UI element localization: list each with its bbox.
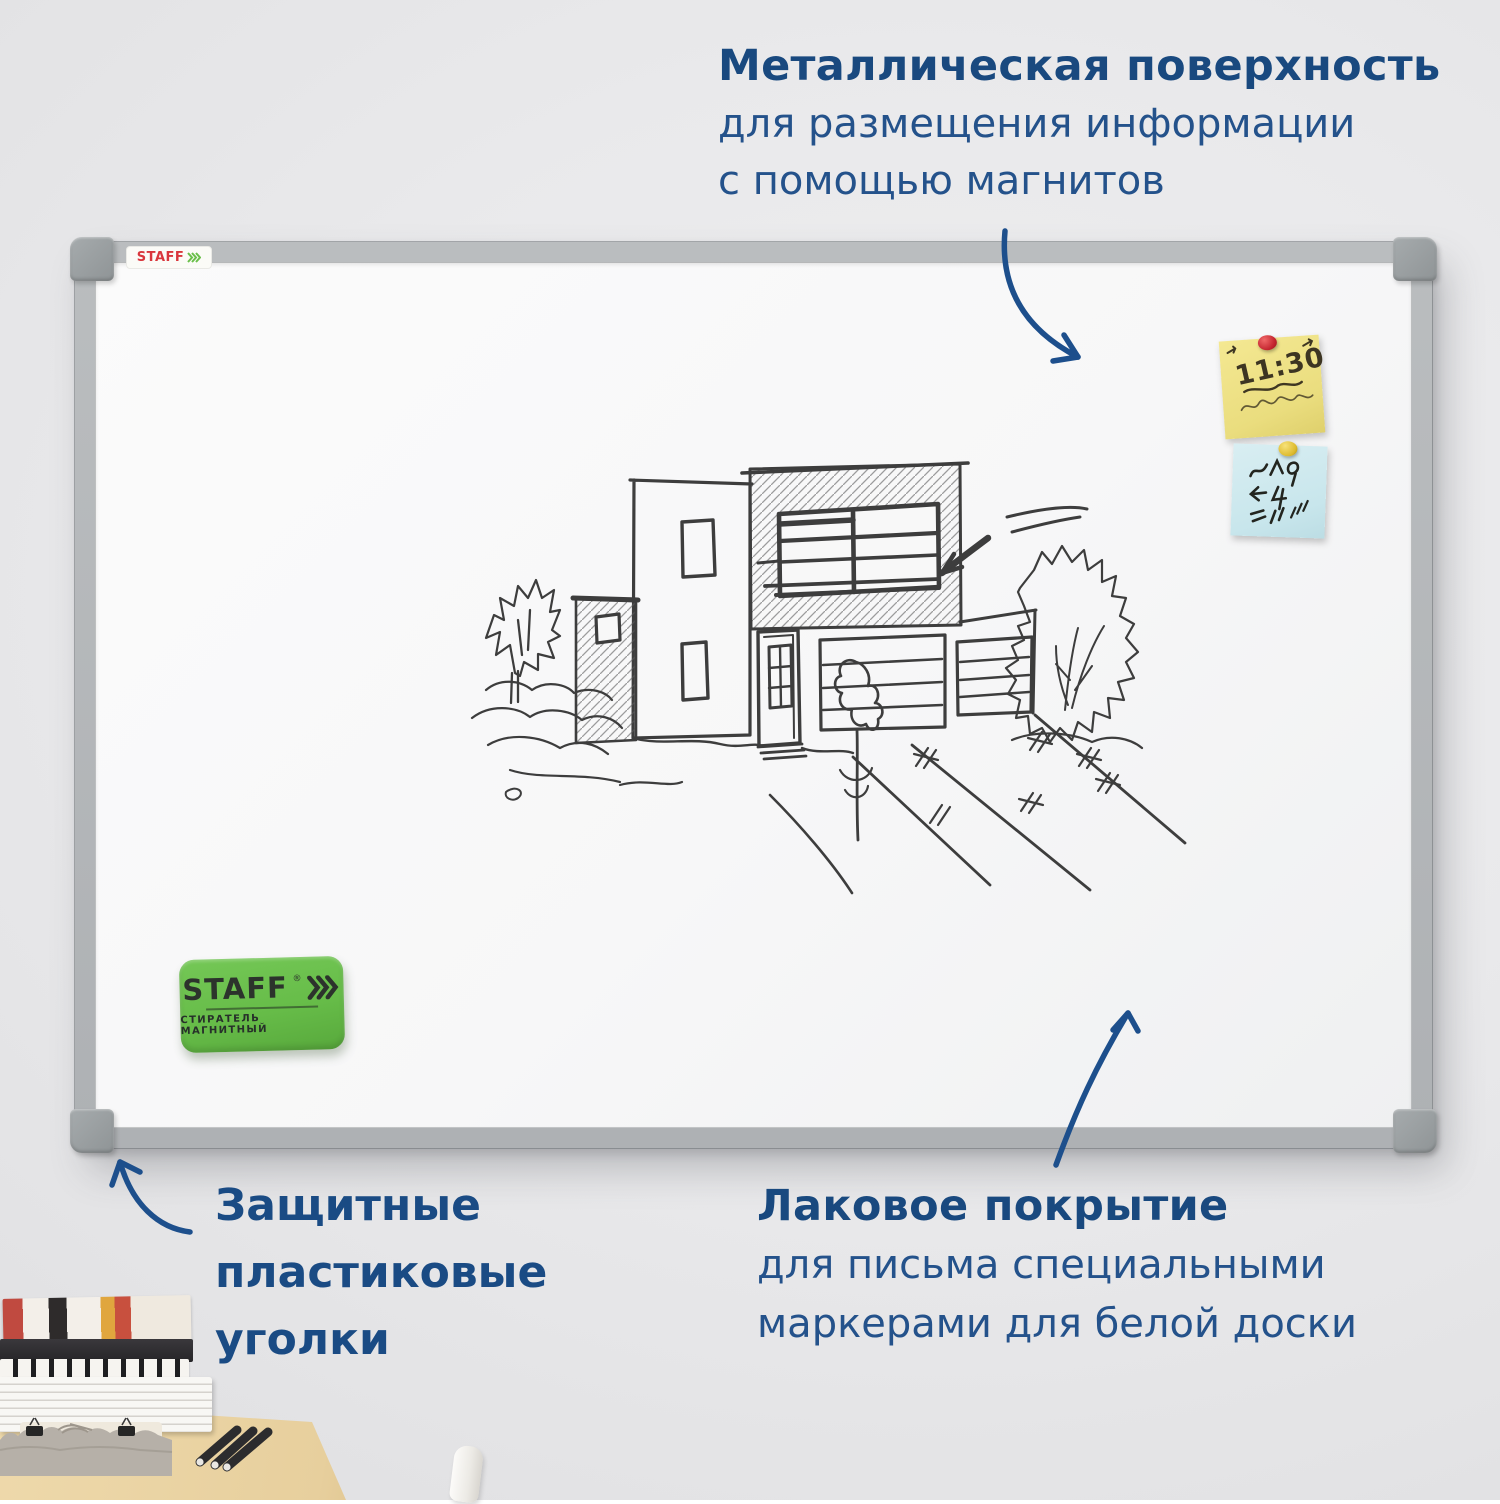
eraser-label-text: СТИРАТЕЛЬ МАГНИТНЫЙ [180, 1011, 345, 1037]
callout-magnetic-surface: Металлическая поверхность для размещения… [718, 36, 1440, 210]
staff-frame-sticker-label: STAFF [137, 250, 185, 265]
magnetic-eraser: STAFF ® СТИРАТЕЛЬ МАГНИТНЫЙ [179, 956, 345, 1053]
binder-clip [26, 1426, 43, 1436]
callout-lacquer-coating: Лаковое покрытие для письма специальными… [757, 1176, 1357, 1354]
corner-cap-bottom-right [1393, 1109, 1437, 1153]
binder-clip [118, 1426, 135, 1436]
whiteboard: STAFF 11:30 [75, 242, 1432, 1148]
callout-magnetic-title: Металлическая поверхность [718, 36, 1440, 96]
staff-chevrons-icon [187, 252, 201, 263]
house-sketch [420, 440, 1370, 910]
book-red-white [3, 1295, 192, 1345]
eraser-divider [206, 1006, 318, 1011]
callout-lacquer-title: Лаковое покрытие [757, 1176, 1357, 1236]
pencil-tray [0, 1427, 172, 1476]
eraser-chevrons-icon [306, 975, 341, 1000]
corner-cap-top-right [1393, 237, 1437, 281]
sticky-note-blue [1230, 443, 1327, 538]
desk-accessories [0, 1410, 330, 1500]
callout-corners-line3: уголки [215, 1306, 547, 1373]
eraser-brand-row: STAFF ® [182, 972, 341, 1005]
callout-corners-line2: пластиковые [215, 1239, 547, 1306]
callout-lacquer-line1: для письма специальными [757, 1236, 1357, 1295]
sticky-note-yellow: 11:30 [1219, 335, 1326, 440]
callout-lacquer-line2: маркерами для белой доски [757, 1295, 1357, 1354]
staff-frame-sticker: STAFF [126, 246, 212, 269]
note-scribbles [1230, 443, 1327, 538]
callout-corners-line1: Защитные [215, 1172, 547, 1239]
arrow-corners [120, 1162, 190, 1232]
paper-roll [449, 1444, 485, 1503]
scene: STAFF 11:30 [0, 0, 1500, 1500]
callout-magnetic-line2: с помощью магнитов [718, 153, 1440, 210]
eraser-registered-mark: ® [292, 974, 301, 984]
note-doodles [1219, 335, 1326, 440]
corner-cap-top-left [70, 237, 114, 281]
corner-cap-bottom-left [70, 1109, 114, 1153]
eraser-brand-text: STAFF [182, 973, 288, 1005]
callout-protective-corners: Защитные пластиковые уголки [215, 1172, 547, 1373]
markers [200, 1430, 268, 1467]
callout-magnetic-line1: для размещения информации [718, 96, 1440, 153]
